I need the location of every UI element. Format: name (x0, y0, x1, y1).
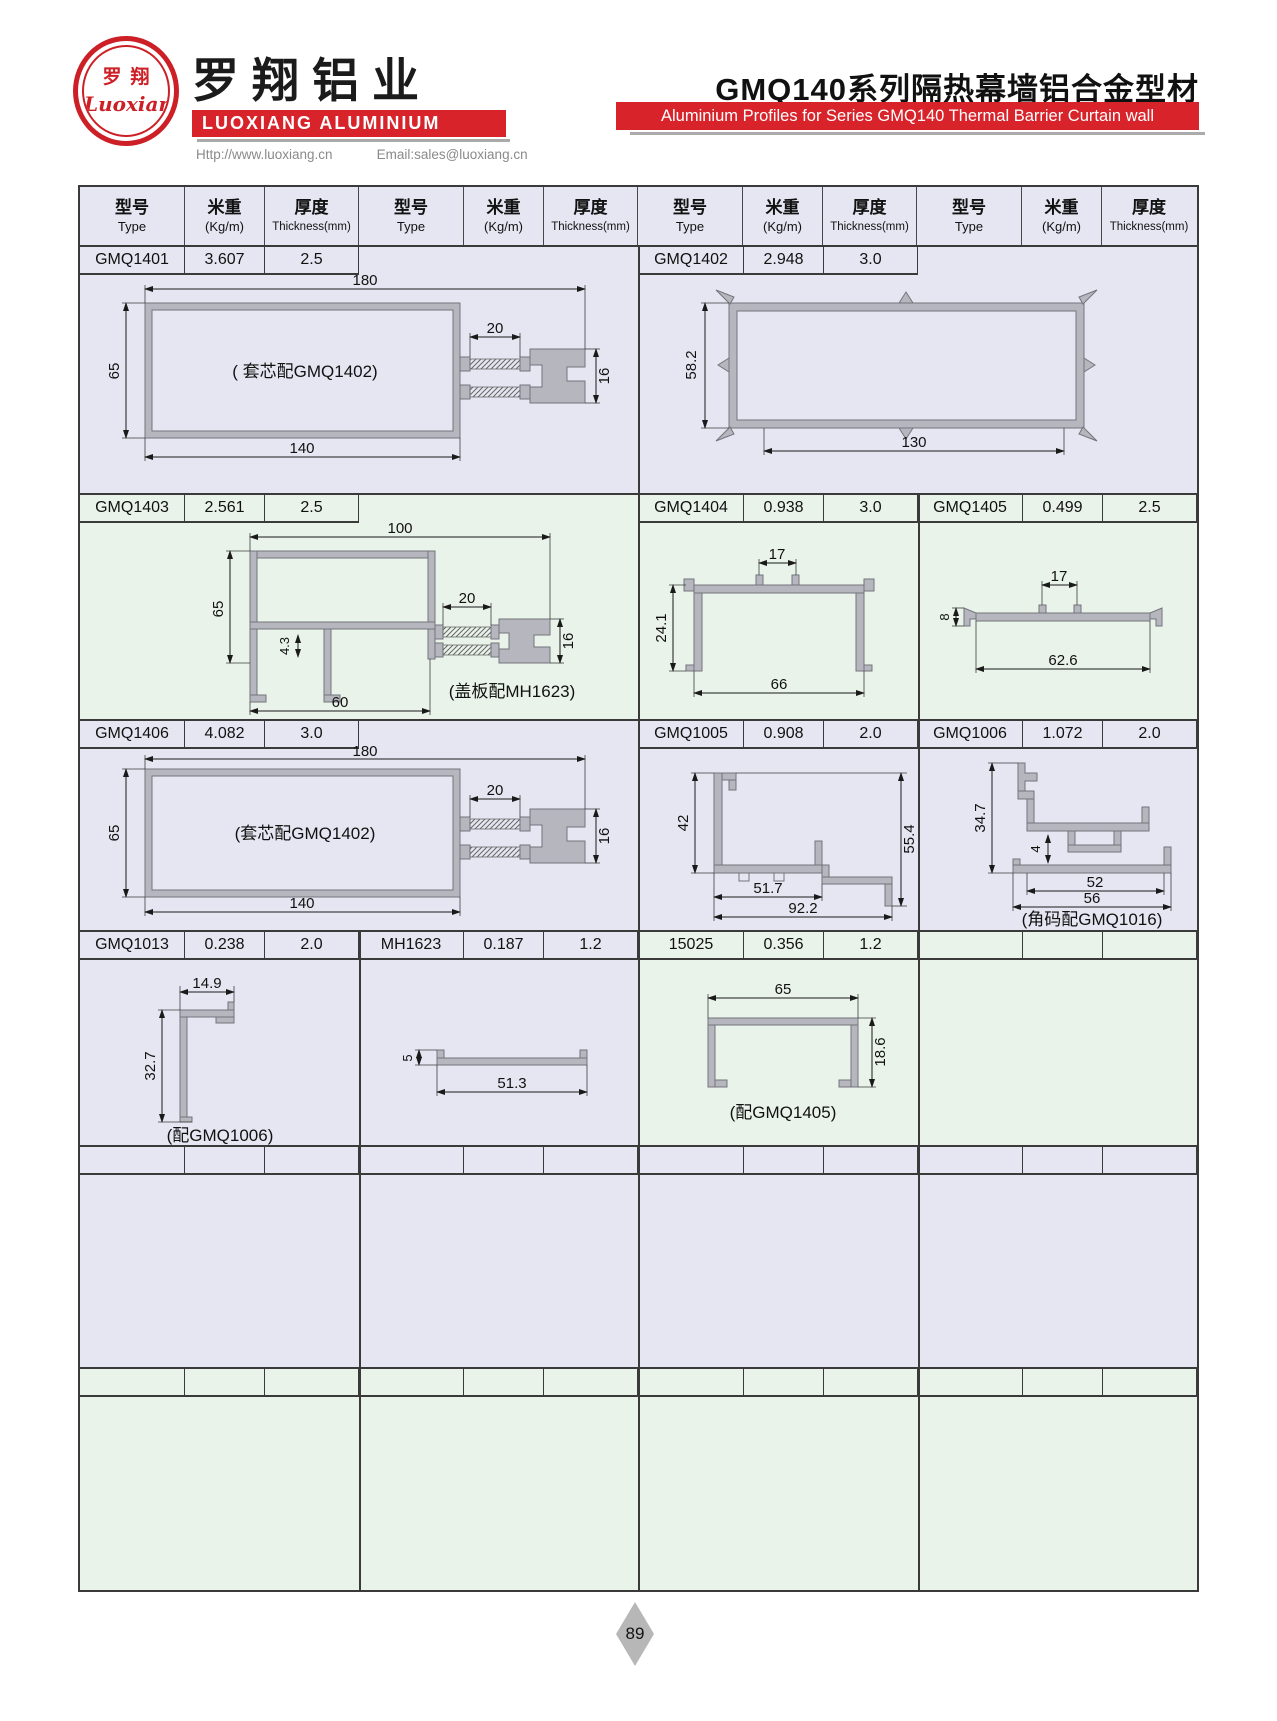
cell-weight: 1.072 (1023, 721, 1103, 747)
cell-type: GMQ1013 (80, 932, 185, 958)
page-number-badge: 89 (616, 1602, 654, 1666)
dim-label: 18.6 (872, 1037, 889, 1066)
divider (197, 139, 510, 142)
dim-label: 20 (459, 590, 476, 607)
dim-label: 56 (1084, 890, 1101, 907)
row-gmq1013-mh1623-15025: GMQ1013 0.238 2.0 MH1623 0.187 1.2 15025… (80, 932, 1197, 1147)
row-empty-2 (80, 1369, 1197, 1590)
dim-label: 52 (1087, 874, 1104, 891)
divider (918, 1369, 920, 1590)
email-text: Email:sales@luoxiang.cn (377, 147, 528, 162)
dim-label: 16 (596, 368, 613, 385)
dim-label: 55.4 (901, 824, 918, 853)
profiles-table: 型号Type 米重(Kg/m) 厚度Thickness(mm) 型号Type 米… (78, 185, 1199, 1592)
dim-label: 140 (289, 440, 314, 457)
table-row-empty (639, 1369, 918, 1397)
dim-label: 180 (352, 272, 377, 289)
website-text: Http://www.luoxiang.cn (196, 147, 333, 162)
col-header-weight: 米重(Kg/m) (185, 187, 265, 245)
drawing-gmq1404: 17 24.1 66 (639, 523, 918, 719)
table-row-empty (359, 1369, 638, 1397)
table-row-gmq1404: GMQ1404 0.938 3.0 (639, 495, 918, 523)
contact-line: Http://www.luoxiang.cn Email:sales@luoxi… (196, 147, 528, 162)
dim-label: 130 (901, 434, 926, 451)
dim-label: 140 (289, 895, 314, 912)
col-header-type: 型号Type (917, 187, 1022, 245)
col-header-thickness: 厚度Thickness(mm) (1102, 187, 1196, 245)
company-name-en: LUOXIANG ALUMINIUM (192, 110, 506, 137)
col-header-thickness: 厚度Thickness(mm) (823, 187, 917, 245)
dim-label: 51.7 (753, 880, 782, 897)
cell-thickness: 3.0 (824, 495, 918, 521)
dim-label: 14.9 (192, 975, 221, 992)
drawing-gmq1006: 34.7 4 52 56 (角码配GMQ1016) (918, 749, 1197, 930)
dim-label: 20 (487, 320, 504, 337)
dim-label: 4.3 (277, 637, 292, 655)
dim-label: 65 (106, 825, 123, 842)
table-row-empty (918, 1147, 1197, 1175)
cell-type: 15025 (639, 932, 744, 958)
col-header-type: 型号Type (638, 187, 743, 245)
cell-type: GMQ1403 (80, 495, 185, 521)
table-row-empty (359, 1147, 638, 1175)
dim-label: 16 (560, 633, 577, 650)
divider (359, 1147, 361, 1367)
drawing-gmq1405: 17 8 62.6 (918, 523, 1197, 719)
cell-type (918, 932, 1023, 958)
dim-label: 17 (1051, 568, 1068, 585)
divider (359, 1369, 361, 1590)
dim-label: 65 (106, 363, 123, 380)
divider (630, 132, 1205, 135)
dim-label: 24.1 (653, 613, 670, 642)
col-header-type: 型号Type (359, 187, 464, 245)
catalog-page: 罗翔 Luoxiang 罗翔铝业 LUOXIANG ALUMINIUM Http… (0, 0, 1277, 1721)
table-row-15025: 15025 0.356 1.2 (639, 932, 918, 960)
table-row-gmq1006: GMQ1006 1.072 2.0 (918, 721, 1197, 749)
cell-weight: 0.499 (1023, 495, 1103, 521)
dim-label: 60 (332, 694, 349, 711)
dim-label: 16 (596, 828, 613, 845)
row-gmq1403-gmq1404-gmq1405: GMQ1403 2.561 2.5 GMQ1404 0.938 3.0 GMQ1… (80, 495, 1197, 721)
dim-label: 5 (400, 1054, 415, 1061)
cell-weight: 2.948 (744, 247, 824, 273)
cell-thickness: 3.0 (824, 247, 918, 273)
cell-type: GMQ1005 (639, 721, 744, 747)
drawing-gmq1005: 42 55.4 51.7 92.2 (639, 749, 919, 930)
cell-weight: 0.238 (185, 932, 265, 958)
cell-weight: 4.082 (185, 721, 265, 747)
table-row-gmq1405: GMQ1405 0.499 2.5 (918, 495, 1197, 523)
drawing-caption: (角码配GMQ1016) (1022, 910, 1163, 929)
dim-label: 100 (387, 520, 412, 537)
drawing-caption: (套芯配GMQ1402) (235, 824, 376, 843)
cell-weight: 0.356 (744, 932, 824, 958)
table-row-gmq1005: GMQ1005 0.908 2.0 (639, 721, 918, 749)
table-row-empty (918, 932, 1197, 960)
cell-weight: 0.187 (464, 932, 544, 958)
page-number: 89 (626, 1624, 645, 1644)
dim-label: 58.2 (683, 350, 700, 379)
series-title-en: Aluminium Profiles for Series GMQ140 The… (616, 102, 1199, 130)
cell-type: GMQ1402 (639, 247, 744, 273)
dim-label: 20 (487, 782, 504, 799)
col-header-weight: 米重(Kg/m) (464, 187, 544, 245)
cell-thickness: 2.5 (1103, 495, 1197, 521)
dim-label: 180 (352, 743, 377, 760)
table-row-gmq1406: GMQ1406 4.082 3.0 (80, 721, 359, 749)
cell-type: GMQ1401 (80, 247, 185, 273)
cell-thickness: 2.0 (824, 721, 918, 747)
cell-type: GMQ1006 (918, 721, 1023, 747)
dim-label: 66 (771, 676, 788, 693)
row-empty-1 (80, 1147, 1197, 1369)
dim-label: 92.2 (788, 900, 817, 917)
divider (638, 1369, 640, 1590)
cell-thickness: 2.5 (265, 247, 359, 273)
drawing-15025: 65 18.6 (配GMQ1405) (638, 960, 918, 1145)
col-header-weight: 米重(Kg/m) (1022, 187, 1102, 245)
drawing-caption: (盖板配MH1623) (449, 682, 576, 701)
cell-thickness: 1.2 (544, 932, 638, 958)
drawing-caption: ( 套芯配GMQ1402) (232, 362, 377, 381)
dim-label: 65 (210, 601, 227, 618)
col-header-thickness: 厚度Thickness(mm) (544, 187, 638, 245)
dim-label: 4 (1028, 845, 1043, 852)
col-header-thickness: 厚度Thickness(mm) (265, 187, 359, 245)
divider (918, 932, 920, 1145)
cell-weight: 3.607 (185, 247, 265, 273)
logo-cn-text: 罗翔 (84, 62, 168, 89)
drawing-gmq1402: 58.2 130 (639, 275, 1197, 493)
dim-label: 17 (769, 546, 786, 563)
dim-label: 51.3 (497, 1075, 526, 1092)
divider (918, 1147, 920, 1367)
table-row-empty (639, 1147, 918, 1175)
col-header-weight: 米重(Kg/m) (743, 187, 823, 245)
company-name-cn: 罗翔铝业 (192, 42, 432, 111)
drawing-gmq1401: 180 65 140 20 16 ( 套芯配GMQ1402) (80, 275, 638, 493)
table-row-empty (80, 1369, 359, 1397)
table-row-gmq1402: GMQ1402 2.948 3.0 (639, 247, 918, 275)
cell-thickness: 2.5 (265, 495, 359, 521)
dim-label: 34.7 (972, 803, 989, 832)
row-gmq1406-gmq1005-gmq1006: GMQ1406 4.082 3.0 GMQ1005 0.908 2.0 GMQ1… (80, 721, 1197, 932)
cell-weight: 0.938 (744, 495, 824, 521)
dim-label: 8 (937, 613, 952, 620)
divider (638, 1147, 640, 1367)
table-row-mh1623: MH1623 0.187 1.2 (359, 932, 638, 960)
table-header-row: 型号Type 米重(Kg/m) 厚度Thickness(mm) 型号Type 米… (80, 187, 1197, 247)
cell-type: MH1623 (359, 932, 464, 958)
cell-type: GMQ1405 (918, 495, 1023, 521)
drawing-caption: (配GMQ1006) (167, 1126, 274, 1145)
dim-label: 32.7 (142, 1051, 159, 1080)
table-row-gmq1403: GMQ1403 2.561 2.5 (80, 495, 359, 523)
cell-weight (1023, 932, 1103, 958)
drawing-mh1623: 5 51.3 (359, 960, 638, 1145)
dim-label: 65 (775, 981, 792, 998)
dim-label: 62.6 (1048, 652, 1077, 669)
company-logo-icon: 罗翔 Luoxiang (73, 36, 179, 146)
cell-thickness: 3.0 (265, 721, 359, 747)
cell-type: GMQ1406 (80, 721, 185, 747)
table-row-empty (80, 1147, 359, 1175)
table-row-gmq1401: GMQ1401 3.607 2.5 (80, 247, 359, 275)
cell-type: GMQ1404 (639, 495, 744, 521)
cell-thickness: 2.0 (1103, 721, 1197, 747)
cell-weight: 0.908 (744, 721, 824, 747)
row-gmq1401-gmq1402: GMQ1401 3.607 2.5 GMQ1402 2.948 3.0 180 (80, 247, 1197, 495)
cell-thickness: 2.0 (265, 932, 359, 958)
cell-thickness (1103, 932, 1197, 958)
cell-weight: 2.561 (185, 495, 265, 521)
dim-label: 42 (675, 815, 692, 832)
cell-thickness: 1.2 (824, 932, 918, 958)
drawing-gmq1013: 14.9 32.7 (配GMQ1006) (80, 960, 359, 1145)
drawing-gmq1406: 180 65 140 20 16 (套芯配GMQ1402) (80, 749, 638, 930)
logo-script-text: Luoxiang (84, 92, 168, 116)
table-row-empty (918, 1369, 1197, 1397)
table-row-gmq1013: GMQ1013 0.238 2.0 (80, 932, 359, 960)
drawing-gmq1403: 100 65 4.3 60 20 16 (盖板配MH1623) (80, 523, 638, 719)
drawing-caption: (配GMQ1405) (730, 1103, 837, 1122)
col-header-type: 型号Type (80, 187, 185, 245)
